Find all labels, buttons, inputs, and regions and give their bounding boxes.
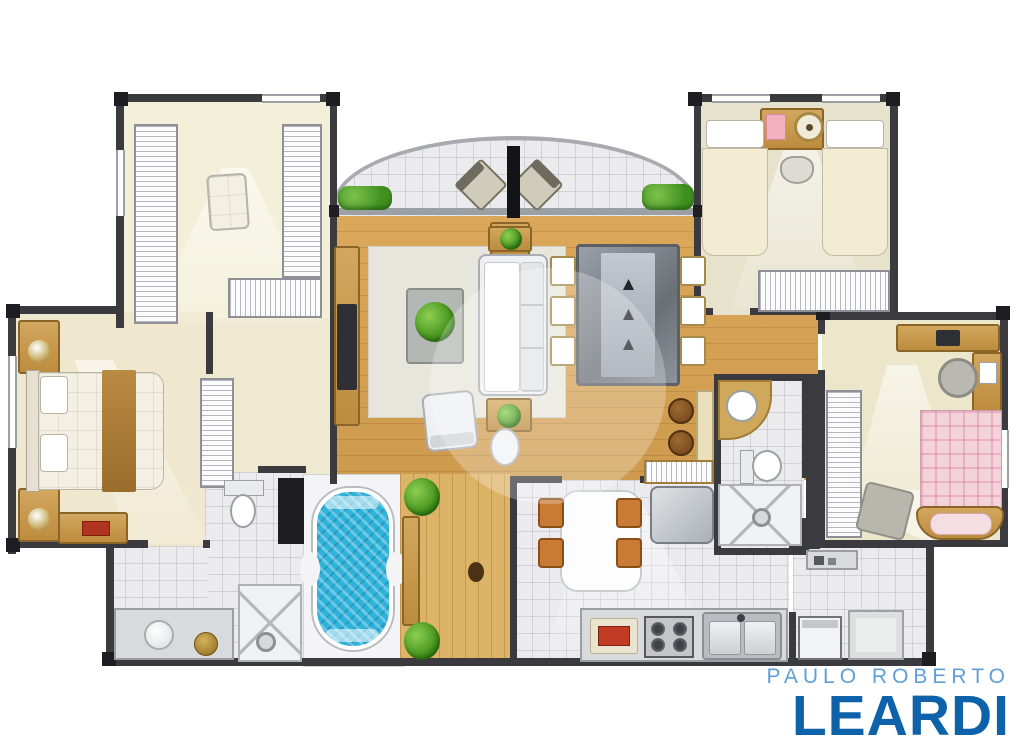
twin-bed-left	[702, 118, 768, 256]
dining-chair	[680, 296, 706, 326]
bed-runner	[102, 370, 136, 492]
pillar	[329, 205, 339, 217]
watermark-circle	[430, 268, 666, 504]
toilet-bowl	[752, 450, 782, 482]
pillow	[826, 120, 884, 148]
wall	[890, 94, 898, 316]
laundry-tank	[848, 610, 904, 660]
sideboard	[644, 460, 714, 484]
closet-wardrobe-right	[282, 124, 322, 278]
kitchen-chair	[538, 538, 564, 568]
pillar	[6, 304, 20, 318]
pillow	[40, 376, 68, 414]
closet-wardrobe-left	[134, 124, 178, 324]
pillar	[886, 92, 900, 106]
refrigerator	[650, 486, 714, 544]
decor-bowl	[468, 562, 484, 582]
burner	[673, 622, 687, 636]
shower-head	[752, 508, 771, 527]
pillow	[930, 513, 992, 535]
table-fan	[794, 112, 824, 142]
window	[712, 94, 770, 103]
master-bed	[26, 370, 166, 492]
floor-plan-image: PAULO ROBERTO LEARDI	[0, 0, 1024, 756]
wall	[714, 548, 809, 555]
laundry-shelf	[806, 550, 858, 570]
pillar	[114, 92, 128, 106]
bed-footboard	[916, 506, 1004, 540]
shelf-item	[814, 556, 824, 565]
kitchen-chair	[616, 538, 642, 568]
stove	[644, 616, 694, 658]
dining-chair	[680, 336, 706, 366]
duvet	[822, 148, 888, 256]
vanity-counter	[114, 608, 234, 660]
washing-machine	[798, 616, 842, 660]
deck-bench	[402, 516, 420, 626]
window	[262, 94, 320, 103]
tub-bench	[325, 496, 379, 509]
pillow	[40, 434, 68, 472]
pillar	[688, 92, 702, 106]
wall	[818, 540, 1008, 547]
wall	[510, 476, 517, 666]
wall	[206, 312, 213, 374]
brand-logo: PAULO ROBERTO LEARDI	[766, 665, 1010, 742]
closet-wardrobe-bottom	[228, 278, 322, 318]
washer-controls	[802, 620, 838, 628]
plant	[500, 228, 522, 250]
tub-notch	[300, 552, 320, 586]
wall	[818, 312, 1008, 320]
gold-bowl	[194, 632, 218, 656]
bathroom-partition	[278, 478, 304, 544]
window	[116, 150, 125, 216]
plant	[404, 622, 440, 660]
toilet-bowl	[230, 494, 256, 528]
dresser-decor	[82, 521, 110, 536]
stool	[780, 156, 814, 184]
red-tray	[598, 626, 630, 646]
burner	[651, 638, 665, 652]
shelf-item	[828, 558, 836, 565]
balcony-divider-column	[507, 146, 520, 218]
tub-bench	[325, 629, 379, 642]
brand-line2: LEARDI	[766, 690, 1010, 742]
suite-wardrobe	[200, 378, 234, 488]
bar-stool	[668, 398, 694, 424]
fan-hub	[806, 124, 813, 131]
pink-decor	[766, 114, 786, 140]
wall	[926, 541, 934, 666]
lamp	[28, 508, 50, 530]
single-bed	[920, 410, 1002, 512]
single-wardrobe	[826, 390, 862, 538]
burner	[673, 638, 687, 652]
plant	[404, 478, 440, 516]
kitchen-chair	[616, 498, 642, 528]
pillow	[706, 120, 764, 148]
pillar	[996, 306, 1010, 320]
wall	[203, 540, 210, 548]
shower-head	[256, 632, 276, 652]
sink-basin	[726, 390, 758, 422]
wall	[789, 612, 796, 662]
balcony-planter	[642, 184, 694, 210]
duvet	[702, 148, 768, 256]
twin-bed-right	[822, 118, 888, 256]
desk-chair	[938, 358, 978, 398]
bar-counter	[696, 390, 714, 464]
wall	[258, 466, 306, 473]
lamp	[28, 340, 50, 362]
spa-tub	[313, 488, 393, 650]
balcony-planter	[338, 186, 392, 210]
sink-basin	[744, 621, 776, 655]
bar-stool	[668, 430, 694, 456]
burner	[651, 622, 665, 636]
twin-dresser	[758, 270, 890, 312]
tv	[337, 304, 357, 390]
wall	[106, 546, 114, 665]
closet-ottoman	[206, 173, 250, 232]
wall-shaft	[806, 374, 820, 549]
window	[8, 356, 17, 448]
wall	[8, 306, 124, 314]
faucet	[737, 614, 745, 622]
sink-basin	[709, 621, 741, 655]
kitchen-sink	[702, 612, 782, 660]
window	[822, 94, 880, 103]
desk-paper	[979, 362, 997, 384]
dining-chair	[680, 256, 706, 286]
laptop	[936, 330, 960, 346]
pillar	[326, 92, 340, 106]
vanity-sink	[144, 620, 174, 650]
